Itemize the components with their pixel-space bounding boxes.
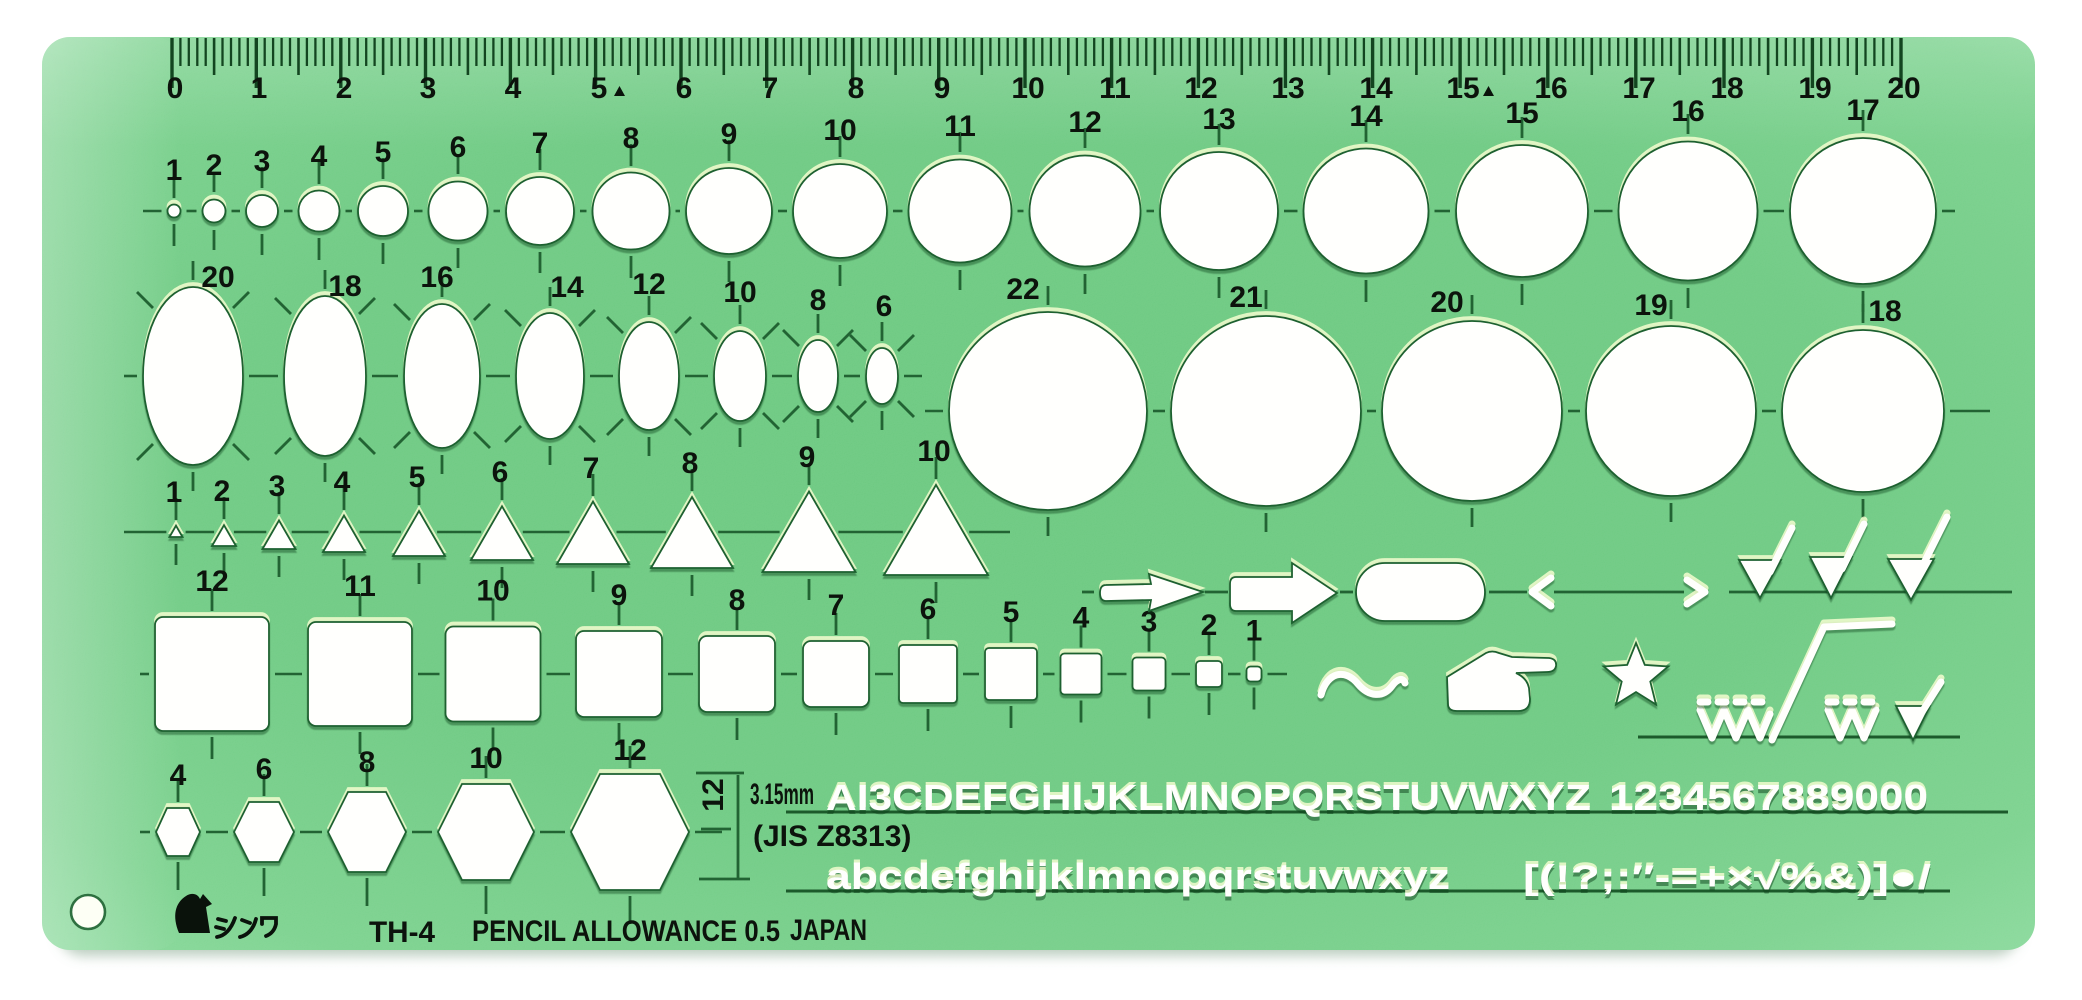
svg-text:20: 20 xyxy=(1430,286,1463,319)
svg-text:3: 3 xyxy=(269,470,286,503)
svg-text:12: 12 xyxy=(613,734,646,767)
svg-text:PENCIL ALLOWANCE 0.5: PENCIL ALLOWANCE 0.5 xyxy=(472,915,780,948)
svg-text:11: 11 xyxy=(944,110,976,143)
svg-text:TH-4: TH-4 xyxy=(369,916,435,949)
svg-text:16: 16 xyxy=(1671,95,1704,128)
svg-text:0: 0 xyxy=(167,72,184,105)
svg-text:6: 6 xyxy=(450,131,467,164)
svg-text:19: 19 xyxy=(1798,72,1831,105)
svg-text:1234567889000: 1234567889000 xyxy=(1609,777,1928,818)
svg-text:11: 11 xyxy=(1099,72,1131,105)
svg-text:8: 8 xyxy=(623,122,640,155)
svg-text:10: 10 xyxy=(723,276,756,309)
svg-text:JAPAN: JAPAN xyxy=(790,914,867,947)
svg-text:2: 2 xyxy=(214,475,231,508)
svg-text:6: 6 xyxy=(492,456,509,489)
svg-text:abcdefghijklmnopqrstuvwxyz: abcdefghijklmnopqrstuvwxyz xyxy=(826,856,1450,897)
svg-text:13: 13 xyxy=(1202,103,1235,136)
svg-text:5: 5 xyxy=(591,72,608,105)
svg-text:1: 1 xyxy=(251,72,268,105)
svg-text:2: 2 xyxy=(206,149,223,182)
svg-text:8: 8 xyxy=(810,284,827,317)
svg-text:8: 8 xyxy=(848,72,865,105)
svg-text:1: 1 xyxy=(1246,615,1263,648)
svg-text:6: 6 xyxy=(256,753,273,786)
svg-text:3: 3 xyxy=(420,72,437,105)
svg-text:5: 5 xyxy=(409,461,426,494)
svg-text:AI3CDEFGHIJKLMNOPQRSTUVWXYZ: AI3CDEFGHIJKLMNOPQRSTUVWXYZ xyxy=(826,777,1591,818)
svg-text:1: 1 xyxy=(166,154,183,187)
svg-text:10: 10 xyxy=(1011,72,1044,105)
svg-text:11: 11 xyxy=(344,570,376,603)
svg-text:10: 10 xyxy=(823,114,856,147)
svg-text:18: 18 xyxy=(1868,295,1901,328)
svg-text:8: 8 xyxy=(682,447,699,480)
svg-text:2: 2 xyxy=(336,72,353,105)
svg-text:12: 12 xyxy=(632,268,665,301)
svg-text:10: 10 xyxy=(917,435,950,468)
svg-text:4: 4 xyxy=(1073,602,1090,635)
svg-text:9: 9 xyxy=(721,118,738,151)
svg-text:7: 7 xyxy=(583,452,600,485)
svg-text:19: 19 xyxy=(1634,289,1667,322)
svg-text:10: 10 xyxy=(476,575,509,608)
svg-text:3.15mm: 3.15mm xyxy=(750,778,814,811)
svg-text:7: 7 xyxy=(532,127,549,160)
svg-text:17: 17 xyxy=(1846,94,1879,127)
svg-text:10: 10 xyxy=(469,742,502,775)
svg-text:13: 13 xyxy=(1271,72,1304,105)
svg-text:15: 15 xyxy=(1505,97,1538,130)
svg-text:12: 12 xyxy=(195,565,228,598)
svg-text:4: 4 xyxy=(505,72,522,105)
svg-text:7: 7 xyxy=(828,589,845,622)
svg-text:6: 6 xyxy=(676,72,693,105)
svg-text:14: 14 xyxy=(1349,100,1383,133)
svg-text:7: 7 xyxy=(762,72,779,105)
svg-text:2: 2 xyxy=(1201,609,1218,642)
svg-text:[(!?;:″-=+×√%&)]●/: [(!?;:″-=+×√%&)]●/ xyxy=(1523,859,1932,897)
svg-text:5: 5 xyxy=(375,136,392,169)
svg-text:17: 17 xyxy=(1622,72,1655,105)
svg-text:3: 3 xyxy=(254,145,271,178)
svg-text:16: 16 xyxy=(420,261,453,294)
svg-text:14: 14 xyxy=(550,271,584,304)
svg-text:4: 4 xyxy=(311,140,328,173)
svg-text:9: 9 xyxy=(799,441,816,474)
svg-text:4: 4 xyxy=(170,759,187,792)
svg-text:20: 20 xyxy=(1887,72,1920,105)
svg-text:8: 8 xyxy=(359,746,376,779)
svg-text:8: 8 xyxy=(729,584,746,617)
svg-text:21: 21 xyxy=(1229,281,1262,314)
svg-text:4: 4 xyxy=(334,466,351,499)
svg-text:5: 5 xyxy=(1003,596,1020,629)
svg-text:1: 1 xyxy=(166,476,183,509)
svg-text:9: 9 xyxy=(934,72,951,105)
svg-text:16: 16 xyxy=(1534,72,1567,105)
svg-text:18: 18 xyxy=(328,270,361,303)
svg-text:12: 12 xyxy=(1068,106,1101,139)
svg-text:18: 18 xyxy=(1710,72,1743,105)
svg-text:9: 9 xyxy=(611,579,628,612)
svg-text:12: 12 xyxy=(1184,72,1217,105)
svg-text:22: 22 xyxy=(1006,273,1039,306)
svg-text:(JIS Z8313): (JIS Z8313) xyxy=(753,820,911,853)
svg-text:6: 6 xyxy=(920,593,937,626)
svg-text:12: 12 xyxy=(697,778,730,811)
svg-text:20: 20 xyxy=(201,261,234,294)
svg-text:15: 15 xyxy=(1446,72,1479,105)
svg-text:6: 6 xyxy=(876,290,893,323)
